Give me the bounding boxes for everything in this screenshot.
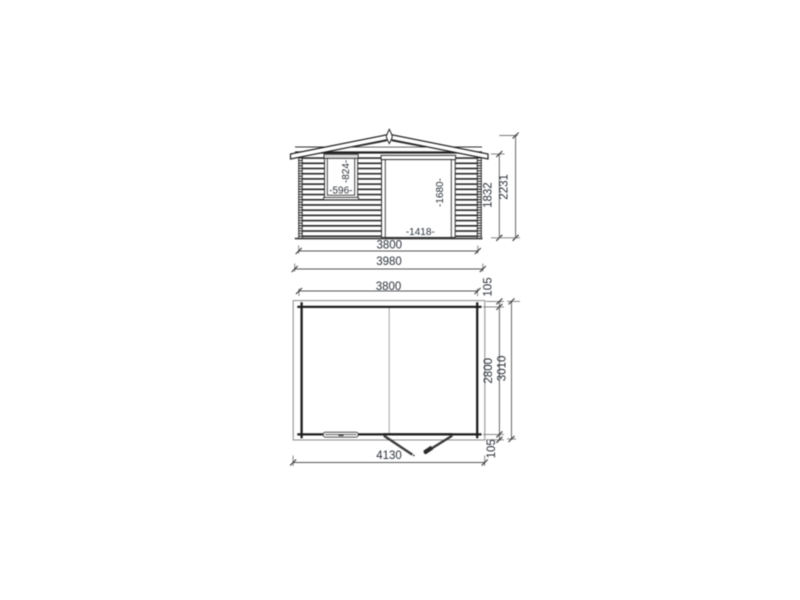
svg-text:105: 105 bbox=[486, 439, 498, 458]
svg-text:3800: 3800 bbox=[377, 239, 403, 251]
svg-text:3010: 3010 bbox=[496, 356, 508, 382]
svg-text:-1680-: -1680- bbox=[435, 178, 446, 207]
svg-text:4130: 4130 bbox=[376, 450, 402, 462]
svg-text:1832: 1832 bbox=[482, 182, 494, 208]
svg-text:-824-: -824- bbox=[341, 160, 352, 183]
svg-text:2231: 2231 bbox=[498, 174, 510, 200]
svg-text:3800: 3800 bbox=[376, 281, 402, 293]
svg-text:-1418-: -1418- bbox=[406, 227, 435, 238]
svg-text:105: 105 bbox=[482, 277, 494, 296]
svg-text:2800: 2800 bbox=[483, 358, 495, 384]
svg-text:3980: 3980 bbox=[376, 256, 402, 268]
svg-text:-596-: -596- bbox=[329, 185, 352, 196]
